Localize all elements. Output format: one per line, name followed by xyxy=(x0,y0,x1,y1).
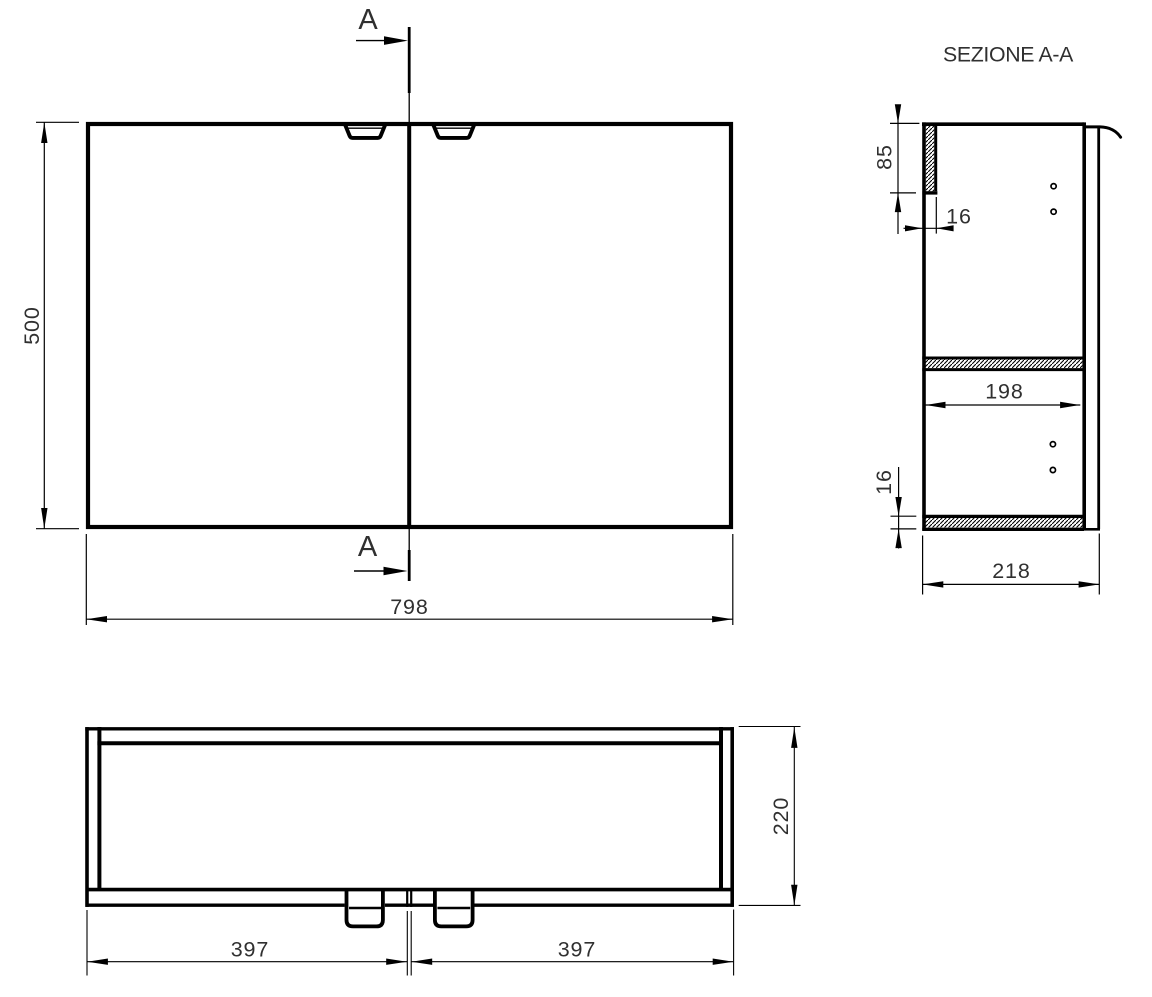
svg-text:798: 798 xyxy=(390,595,429,619)
svg-text:198: 198 xyxy=(985,379,1024,403)
svg-text:500: 500 xyxy=(20,306,44,345)
svg-text:SEZIONE A-A: SEZIONE A-A xyxy=(943,43,1074,67)
svg-text:218: 218 xyxy=(992,559,1031,583)
svg-text:16: 16 xyxy=(872,469,896,495)
svg-text:85: 85 xyxy=(872,144,896,170)
svg-text:397: 397 xyxy=(558,938,597,962)
svg-text:220: 220 xyxy=(769,797,793,836)
svg-text:A: A xyxy=(358,4,378,36)
svg-text:397: 397 xyxy=(231,938,270,962)
svg-text:16: 16 xyxy=(946,205,972,229)
svg-text:A: A xyxy=(358,531,378,563)
